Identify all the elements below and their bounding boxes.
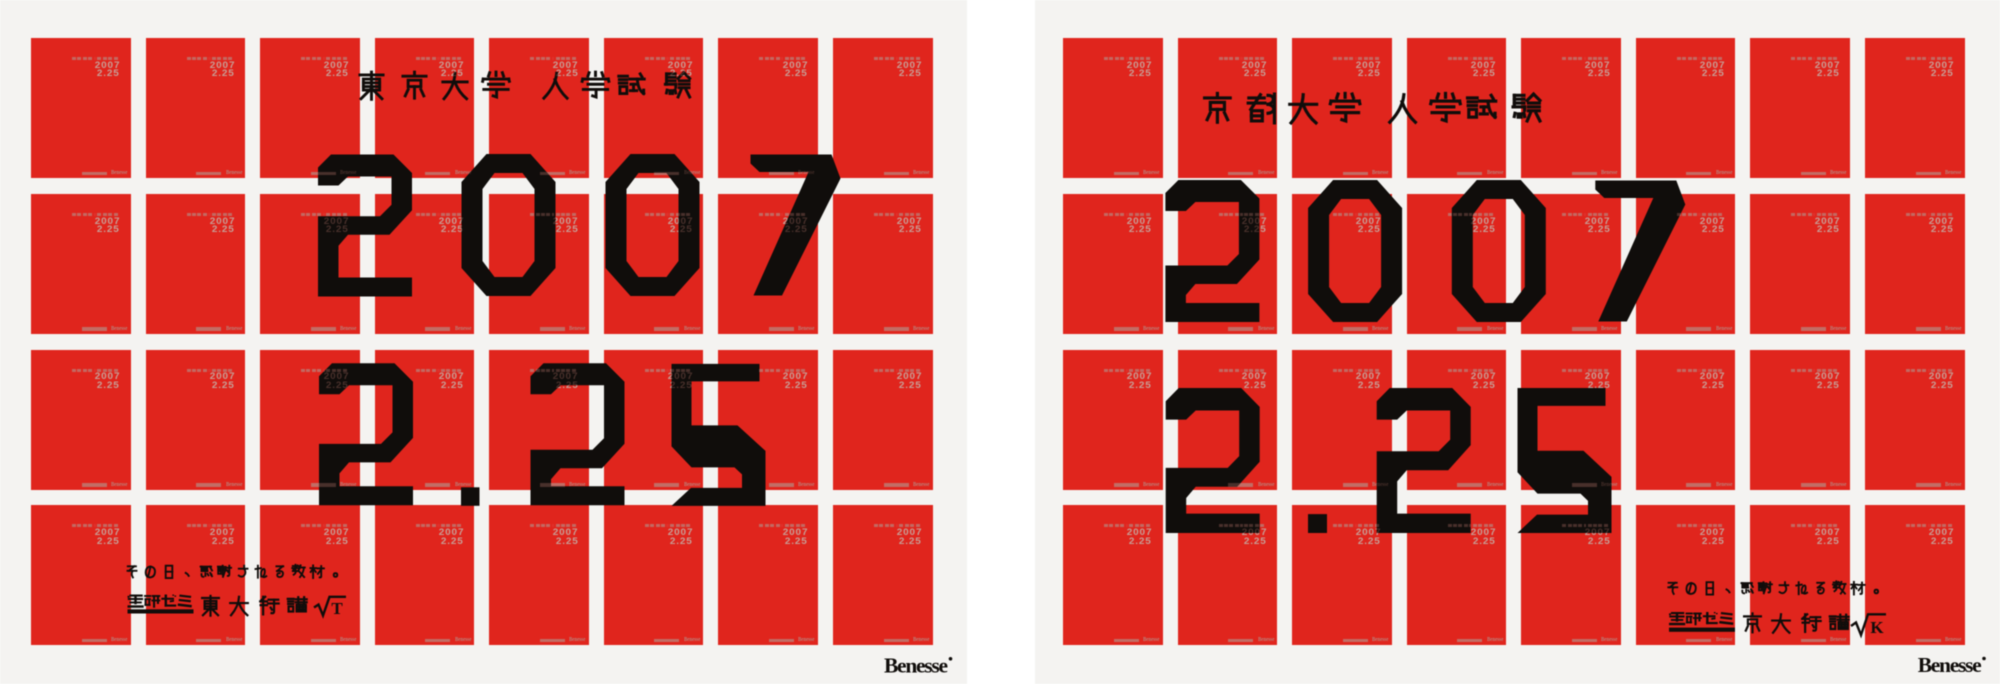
svg-text:Benesse: Benesse [1918, 653, 1982, 677]
svg-text:Benesse: Benesse [884, 654, 948, 678]
